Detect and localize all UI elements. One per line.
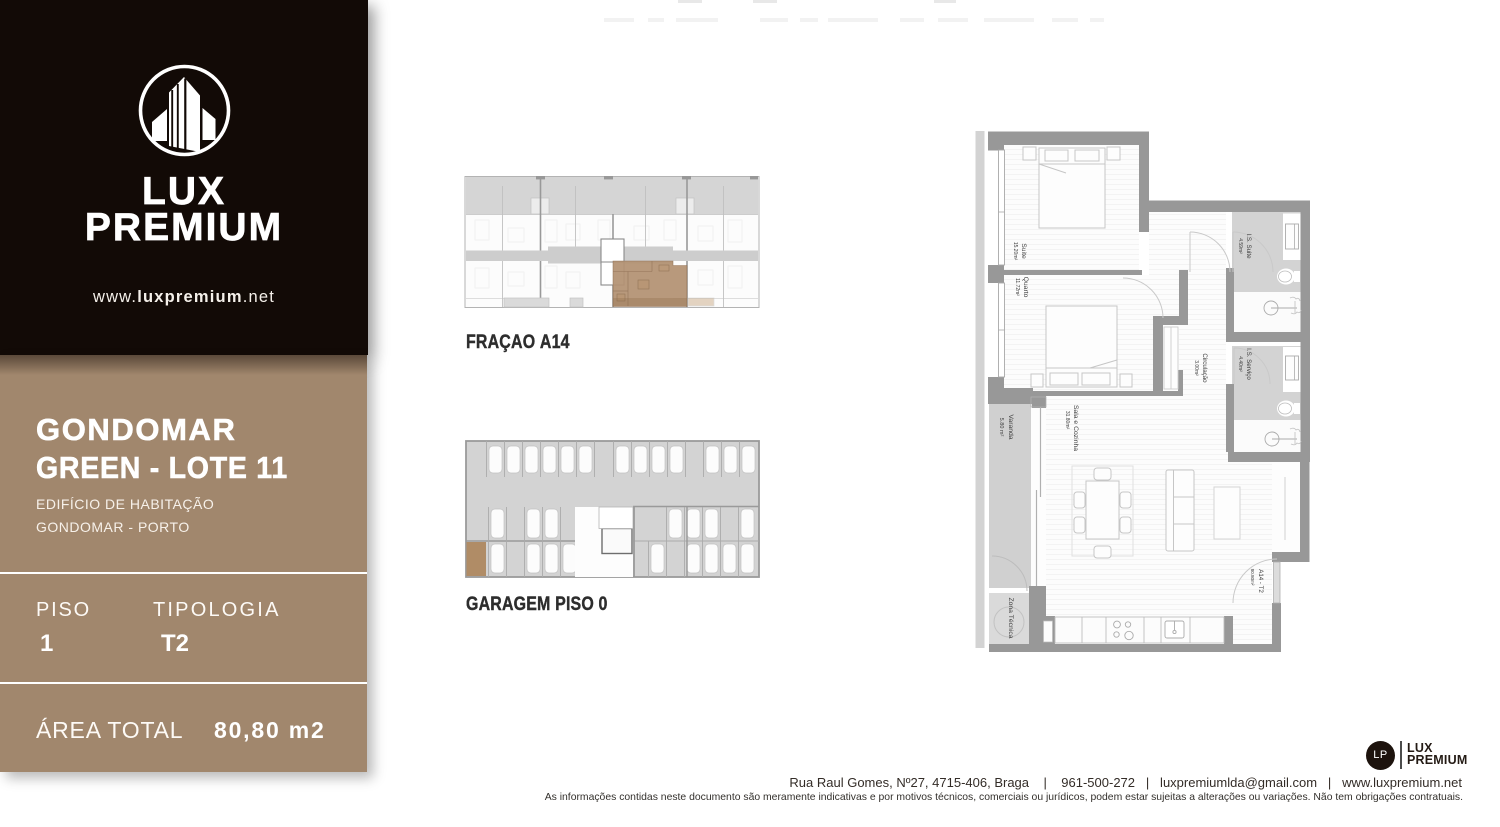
svg-text:4.40m²: 4.40m² bbox=[1237, 356, 1243, 372]
svg-text:Sala e Cozinha: Sala e Cozinha bbox=[1072, 405, 1079, 451]
svg-text:Zona Técnica: Zona Técnica bbox=[1007, 597, 1014, 638]
svg-text:80.80m²: 80.80m² bbox=[1250, 569, 1255, 586]
svg-text:I.S. Serviço: I.S. Serviço bbox=[1245, 348, 1252, 380]
svg-text:4.59m²: 4.59m² bbox=[1237, 238, 1243, 254]
svg-text:I.S. Suite: I.S. Suite bbox=[1245, 233, 1252, 259]
svg-text:11.72m²: 11.72m² bbox=[1014, 278, 1020, 296]
svg-text:31.80m²: 31.80m² bbox=[1064, 411, 1070, 430]
svg-text:Suite: Suite bbox=[1020, 243, 1027, 259]
svg-text:A14 - T2: A14 - T2 bbox=[1257, 569, 1264, 593]
svg-text:Circulação: Circulação bbox=[1201, 353, 1208, 383]
svg-text:15.20m²: 15.20m² bbox=[1012, 242, 1018, 261]
svg-text:Quarto: Quarto bbox=[1022, 277, 1029, 298]
svg-text:3.00m²: 3.00m² bbox=[1193, 360, 1199, 376]
svg-text:5.80 m²: 5.80 m² bbox=[998, 418, 1004, 437]
svg-text:Varanda: Varanda bbox=[1007, 414, 1014, 439]
